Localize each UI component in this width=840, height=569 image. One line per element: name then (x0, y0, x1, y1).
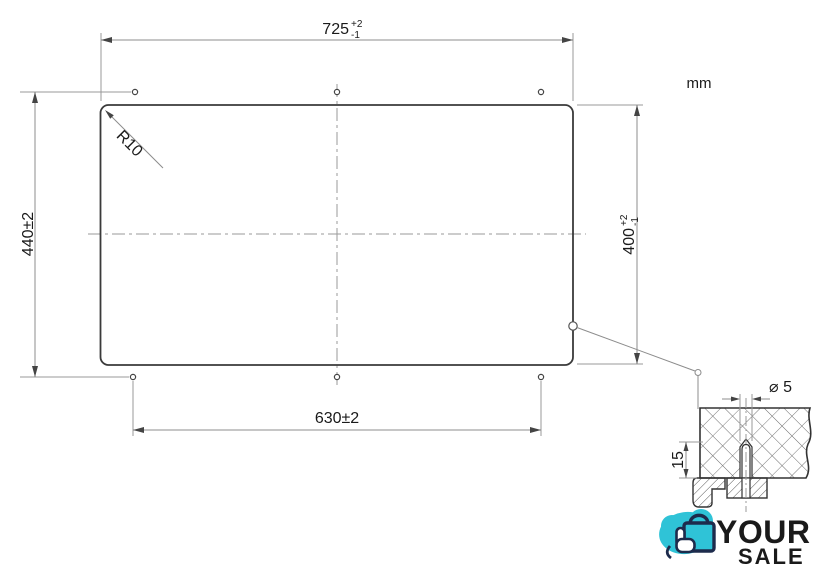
dimension-arrows (32, 37, 640, 433)
dim-top-width-tol-down: -1 (351, 30, 360, 41)
detail-reference-circle (569, 322, 577, 330)
dim-top-width-tol-up: +2 (351, 19, 363, 30)
detail-clamp-bracket (693, 478, 725, 507)
logo-word-bottom: SALE (738, 544, 805, 569)
dim-bottom-span: 630±2 (315, 410, 359, 427)
corner-radius-label: R10 (113, 127, 146, 160)
detail-leader (577, 328, 701, 410)
dim-right-height-tol-down: -1 (630, 217, 641, 226)
brand-logo: YOUR SALE (656, 508, 810, 569)
dim-left-span: 440±2 (20, 212, 37, 256)
unit-label: mm (687, 75, 712, 92)
dim-right-height-tol-up: +2 (619, 214, 630, 226)
dim-right-height-value: 400 (621, 228, 638, 255)
technical-drawing-page: 725 +2 -1 440±2 400 +2 -1 630±2 R10 mm (0, 0, 840, 569)
center-lines (88, 84, 586, 389)
shopping-bag-icon (656, 508, 715, 558)
dimension-lines (35, 40, 637, 430)
detail-dim-depth: 15 (670, 442, 703, 478)
dim-top-width-value: 725 (322, 21, 349, 38)
dim-top-width: 725 +2 -1 (322, 19, 363, 41)
detail-hole-diameter-label: ⌀ 5 (769, 379, 792, 396)
detail-section-view: ⌀ 5 15 (670, 379, 811, 512)
detail-block (700, 408, 811, 478)
drawing-svg: 725 +2 -1 440±2 400 +2 -1 630±2 R10 mm (0, 0, 840, 569)
detail-hole-depth-label: 15 (670, 451, 687, 469)
dim-right-height: 400 +2 -1 (619, 214, 641, 255)
corner-radius-callout: R10 (105, 110, 163, 168)
